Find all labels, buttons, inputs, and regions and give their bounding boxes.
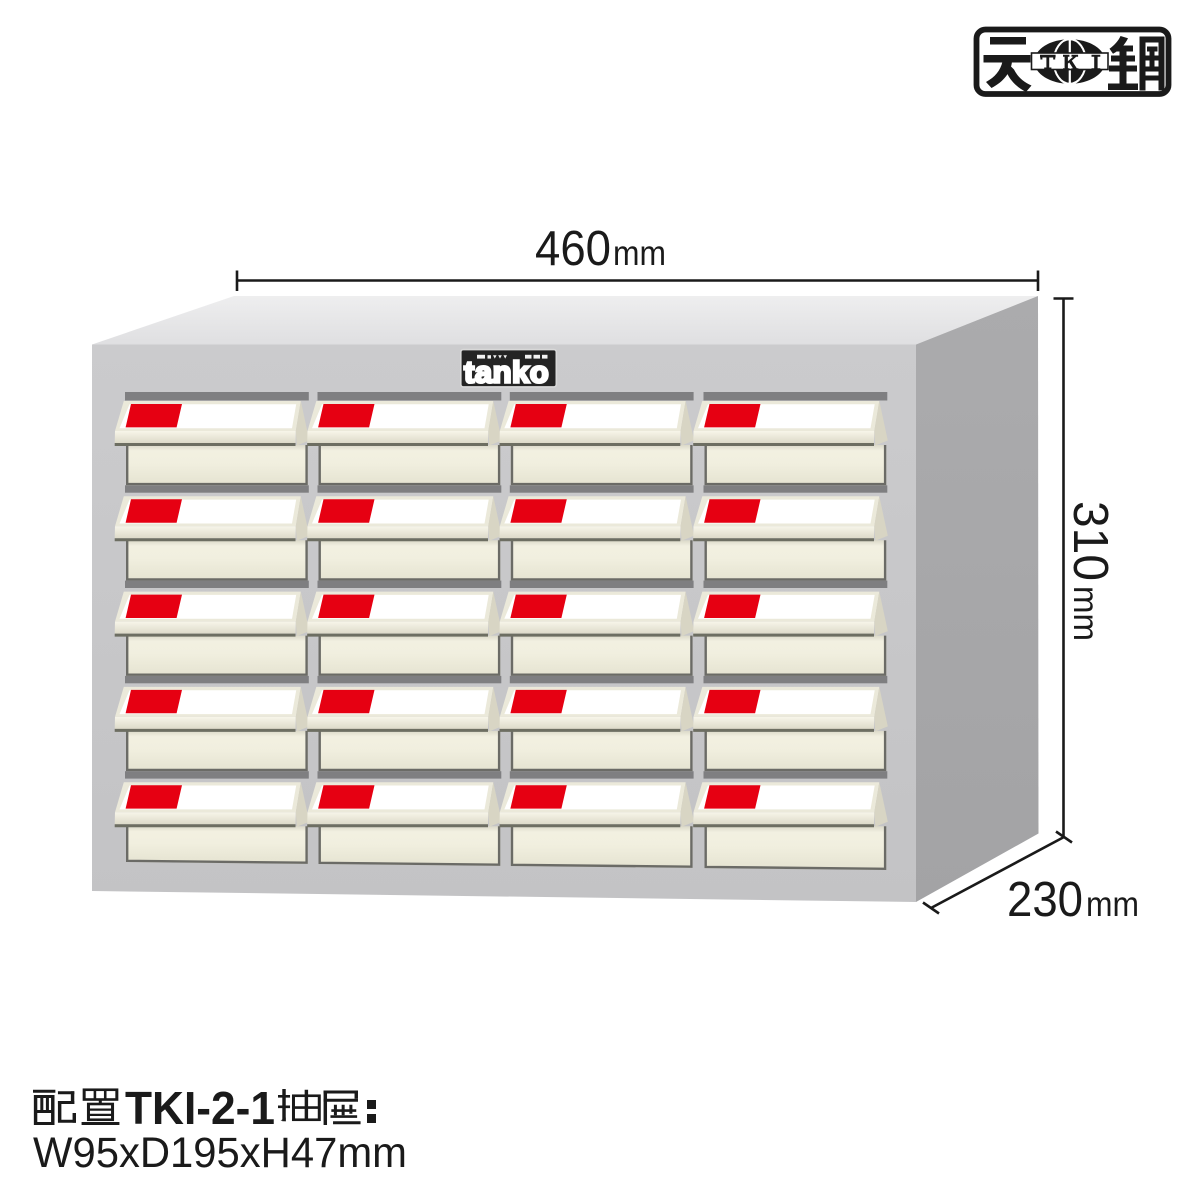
svg-text:460: 460 (535, 221, 611, 276)
svg-text:tanko: tanko (464, 355, 549, 390)
svg-text:mm: mm (613, 233, 666, 273)
svg-text:W95xD195xH47mm: W95xD195xH47mm (33, 1129, 407, 1176)
svg-text:TKI-2-1: TKI-2-1 (125, 1082, 275, 1134)
svg-text:mm: mm (1066, 586, 1106, 641)
svg-text:230: 230 (1007, 872, 1083, 927)
svg-text:mm: mm (1086, 884, 1139, 924)
svg-text:310: 310 (1063, 501, 1118, 581)
